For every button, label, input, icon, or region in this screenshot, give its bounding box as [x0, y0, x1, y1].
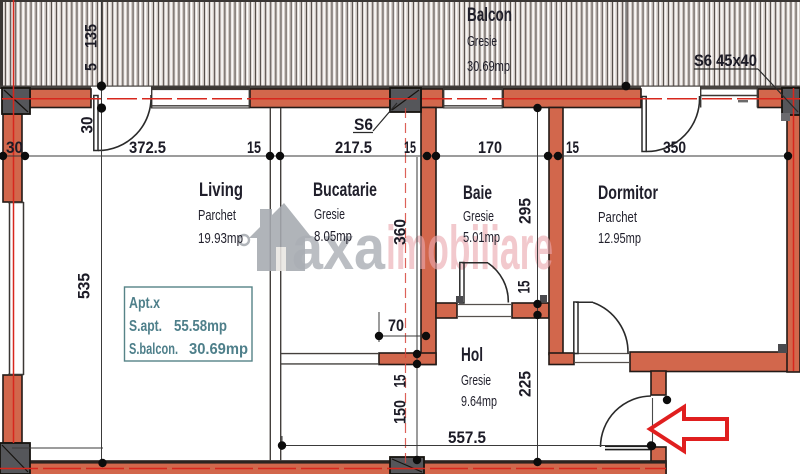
- svg-text:Balcon: Balcon: [467, 5, 512, 26]
- svg-text:557.5: 557.5: [448, 428, 486, 447]
- svg-text:Gresie: Gresie: [467, 33, 497, 50]
- svg-text:15: 15: [391, 375, 410, 388]
- svg-text:Parchet: Parchet: [198, 207, 237, 224]
- svg-text:360: 360: [391, 219, 410, 245]
- svg-text:axa: axa: [292, 214, 385, 283]
- svg-text:30.69mp: 30.69mp: [189, 341, 248, 358]
- svg-text:8.05mp: 8.05mp: [314, 228, 352, 245]
- svg-text:150: 150: [391, 400, 410, 424]
- svg-text:15: 15: [515, 281, 534, 294]
- svg-text:135: 135: [82, 24, 101, 48]
- svg-text:5.01mp: 5.01mp: [463, 229, 500, 246]
- svg-text:30.69mp: 30.69mp: [467, 58, 510, 75]
- svg-text:Dormitor: Dormitor: [598, 183, 658, 204]
- svg-text:Gresie: Gresie: [461, 372, 491, 389]
- svg-text:15: 15: [566, 138, 579, 157]
- svg-text:5: 5: [82, 63, 101, 71]
- svg-text:295: 295: [516, 198, 535, 224]
- svg-text:350: 350: [663, 138, 686, 157]
- svg-text:12.95mp: 12.95mp: [598, 230, 641, 247]
- svg-text:70: 70: [388, 316, 404, 335]
- svg-text:372.5: 372.5: [129, 138, 166, 157]
- svg-text:55.58mp: 55.58mp: [174, 318, 227, 335]
- svg-text:Bucatarie: Bucatarie: [313, 180, 377, 201]
- svg-text:Hol: Hol: [461, 345, 483, 366]
- svg-text:Gresie: Gresie: [463, 208, 494, 225]
- svg-text:9.64mp: 9.64mp: [461, 393, 497, 410]
- svg-text:Baie: Baie: [463, 183, 492, 204]
- svg-text:S.balcon.: S.balcon.: [129, 341, 178, 358]
- svg-text:19.93mp: 19.93mp: [198, 230, 243, 247]
- svg-text:30: 30: [6, 138, 23, 157]
- svg-text:Apt.x: Apt.x: [129, 295, 160, 312]
- svg-text:15: 15: [404, 138, 416, 157]
- svg-text:Gresie: Gresie: [314, 206, 345, 223]
- svg-text:225: 225: [516, 371, 535, 397]
- svg-text:Living: Living: [199, 180, 243, 201]
- svg-text:S6 45x40: S6 45x40: [694, 51, 757, 70]
- svg-text:170: 170: [478, 138, 502, 157]
- svg-text:217.5: 217.5: [335, 138, 372, 157]
- svg-text:S6: S6: [354, 115, 373, 134]
- svg-text:535: 535: [75, 273, 94, 299]
- svg-text:15: 15: [247, 138, 261, 157]
- svg-text:Parchet: Parchet: [598, 209, 638, 226]
- svg-text:30: 30: [78, 117, 97, 134]
- svg-text:S.apt.: S.apt.: [129, 318, 162, 335]
